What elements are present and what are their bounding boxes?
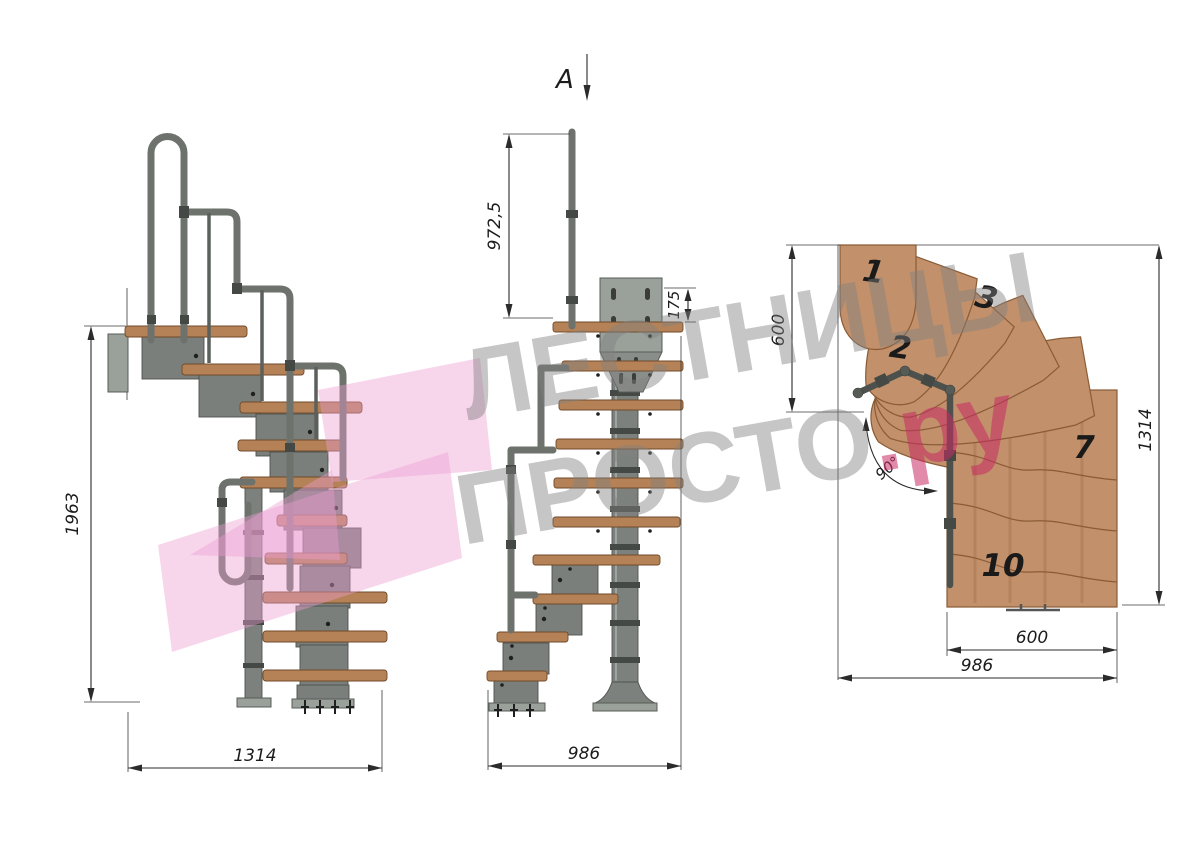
wall-bracket-plate xyxy=(108,334,128,392)
section-label: A xyxy=(554,65,574,95)
turn-column-base xyxy=(237,698,271,707)
dim-side-run: 1314 xyxy=(233,746,276,766)
dim-post-height: 972,5 xyxy=(485,202,505,251)
dim-flight-width: 600 xyxy=(1016,628,1048,648)
staircase-drawing-page: 1963 1314 A xyxy=(0,0,1200,849)
dim-total-width: 986 xyxy=(961,656,994,676)
dim-total-height: 1963 xyxy=(63,492,83,535)
plan-step-label-10: 10 xyxy=(981,548,1024,584)
dim-total-length: 1314 xyxy=(1136,408,1156,451)
handrail-top-loop xyxy=(151,137,184,340)
technical-drawing: 1963 1314 A xyxy=(0,0,1200,849)
plan-step-label-7: 7 xyxy=(1073,430,1095,466)
dim-front-run: 986 xyxy=(568,744,601,764)
column-base-flare xyxy=(595,682,655,703)
section-arrow: A xyxy=(554,54,591,101)
column-base-plate xyxy=(593,703,657,711)
